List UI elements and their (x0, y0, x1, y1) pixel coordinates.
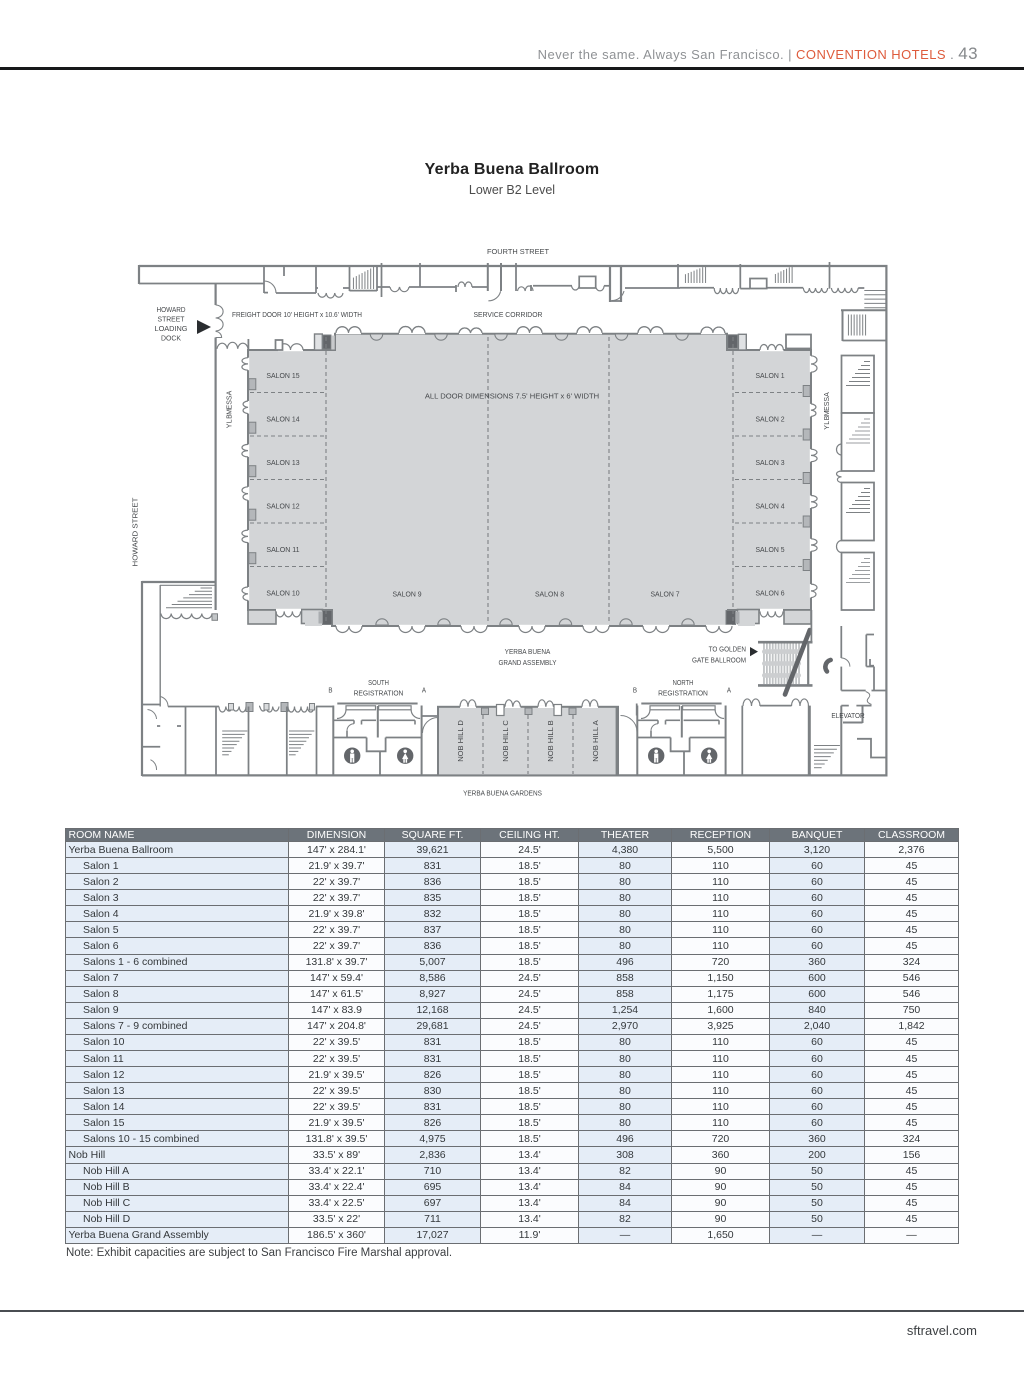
svg-text:NORTH: NORTH (673, 678, 694, 687)
svg-text:SALON 14: SALON 14 (266, 415, 299, 424)
svg-text:E: E (226, 404, 233, 409)
svg-text:SALON 15: SALON 15 (266, 371, 299, 380)
svg-text:STREET: STREET (158, 315, 185, 324)
svg-text:SALON 7: SALON 7 (650, 590, 679, 599)
svg-text:NOB HILL A: NOB HILL A (593, 720, 600, 762)
svg-text:A: A (226, 390, 233, 395)
svg-text:SOUTH: SOUTH (368, 678, 389, 687)
svg-text:SALON 11: SALON 11 (266, 545, 299, 554)
svg-text:YERBA BUENA GARDENS: YERBA BUENA GARDENS (463, 789, 542, 798)
svg-text:B: B (226, 414, 233, 419)
svg-text:A: A (727, 686, 731, 695)
svg-text:SALON 5: SALON 5 (755, 545, 784, 554)
svg-text:S: S (824, 397, 831, 402)
svg-text:ALL DOOR DIMENSIONS 7.5' HEIGH: ALL DOOR DIMENSIONS 7.5' HEIGHT x 6' WID… (425, 392, 599, 401)
svg-text:B: B (633, 686, 637, 695)
svg-text:L: L (824, 421, 831, 425)
svg-text:B: B (824, 415, 831, 420)
svg-text:SALON 12: SALON 12 (266, 502, 299, 511)
svg-text:SALON 13: SALON 13 (266, 458, 299, 467)
svg-text:S: S (226, 395, 233, 400)
svg-text:Y: Y (226, 423, 233, 428)
svg-text:TO GOLDEN: TO GOLDEN (709, 645, 746, 654)
svg-text:E: E (824, 406, 831, 411)
svg-text:Y: Y (824, 425, 831, 430)
svg-text:B: B (328, 686, 332, 695)
svg-text:M: M (226, 409, 233, 415)
svg-text:A: A (422, 686, 426, 695)
svg-text:GATE BALLROOM: GATE BALLROOM (692, 656, 746, 665)
svg-text:FOURTH STREET: FOURTH STREET (487, 247, 550, 256)
svg-text:SERVICE CORRIDOR: SERVICE CORRIDOR (474, 310, 543, 319)
svg-text:S: S (824, 401, 831, 406)
svg-text:L: L (226, 419, 233, 423)
svg-text:NOB HILL B: NOB HILL B (548, 720, 555, 762)
svg-text:REGISTRATION: REGISTRATION (354, 689, 404, 698)
svg-text:SALON 6: SALON 6 (755, 589, 784, 598)
svg-text:LOADING: LOADING (155, 324, 188, 333)
svg-text:ELEVATOR: ELEVATOR (831, 713, 864, 720)
svg-text:SALON 8: SALON 8 (535, 590, 564, 599)
svg-text:SALON 9: SALON 9 (392, 590, 421, 599)
svg-text:YERBA BUENA: YERBA BUENA (505, 647, 551, 656)
svg-text:M: M (824, 410, 831, 416)
svg-text:GRAND ASSEMBLY: GRAND ASSEMBLY (498, 658, 556, 667)
svg-text:SALON 1: SALON 1 (755, 371, 784, 380)
svg-text:HOWARD: HOWARD (157, 305, 186, 314)
svg-text:SALON 2: SALON 2 (755, 415, 784, 424)
svg-text:NOB HILL D: NOB HILL D (458, 720, 465, 762)
svg-text:REGISTRATION: REGISTRATION (658, 689, 708, 698)
svg-text:HOWARD STREET: HOWARD STREET (131, 497, 140, 567)
svg-text:SALON 4: SALON 4 (755, 502, 784, 511)
svg-text:A: A (824, 392, 831, 397)
svg-text:S: S (226, 400, 233, 405)
svg-text:DOCK: DOCK (161, 334, 181, 343)
svg-text:SALON 10: SALON 10 (266, 589, 299, 598)
svg-text:SALON 3: SALON 3 (755, 458, 784, 467)
svg-text:FREIGHT DOOR 10' HEIGHT x 10.6: FREIGHT DOOR 10' HEIGHT x 10.6' WIDTH (232, 310, 362, 319)
svg-text:NOB HILL C: NOB HILL C (503, 720, 510, 762)
